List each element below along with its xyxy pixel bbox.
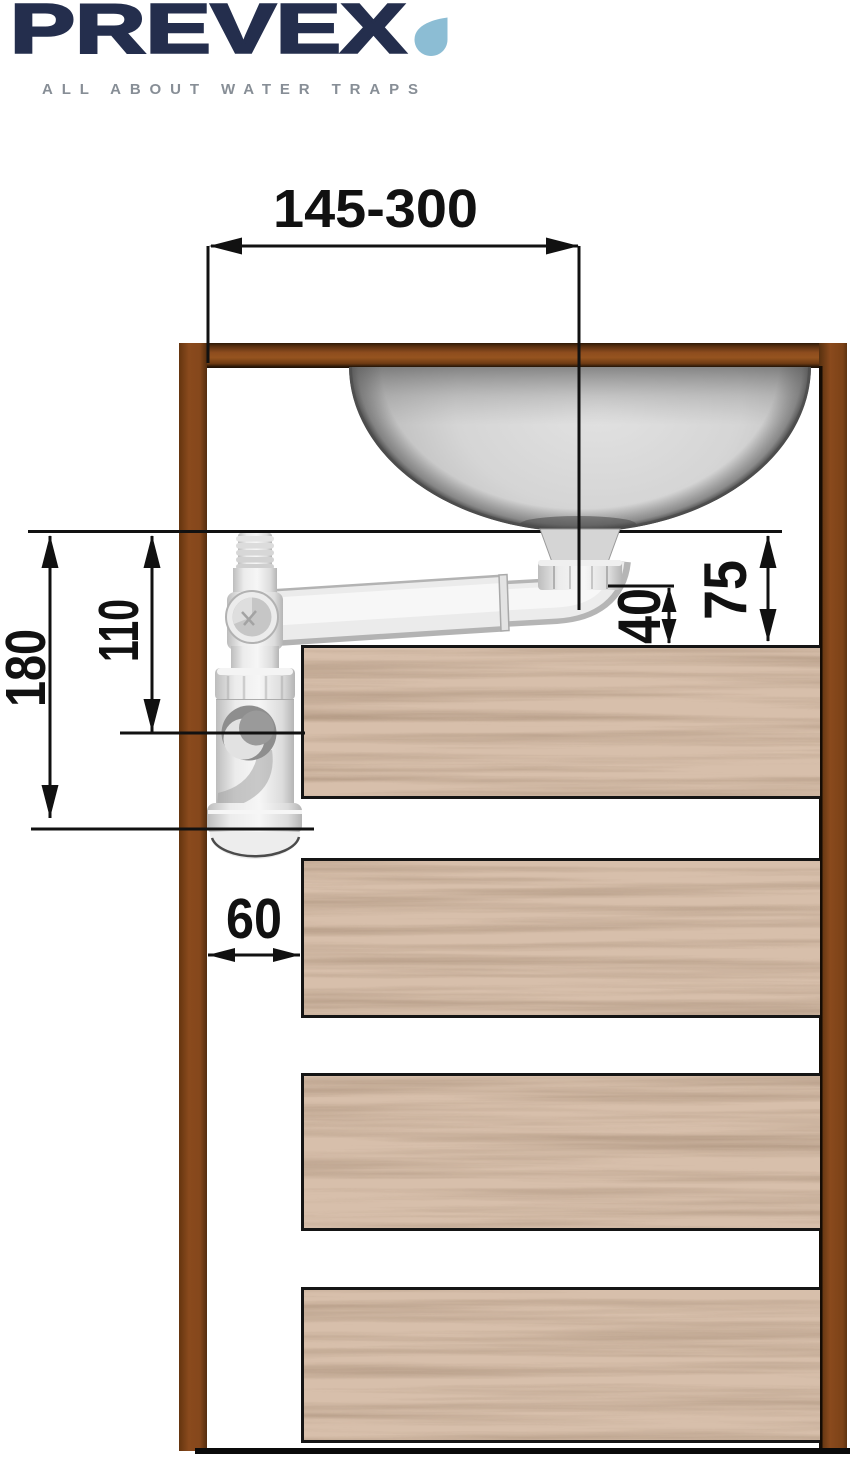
svg-text:60: 60 xyxy=(226,887,282,951)
svg-text:145-300: 145-300 xyxy=(273,179,478,239)
svg-text:75: 75 xyxy=(692,560,759,620)
svg-text:PREVEX: PREVEX xyxy=(10,0,406,68)
svg-text:40: 40 xyxy=(606,588,673,644)
svg-text:110: 110 xyxy=(87,599,151,662)
